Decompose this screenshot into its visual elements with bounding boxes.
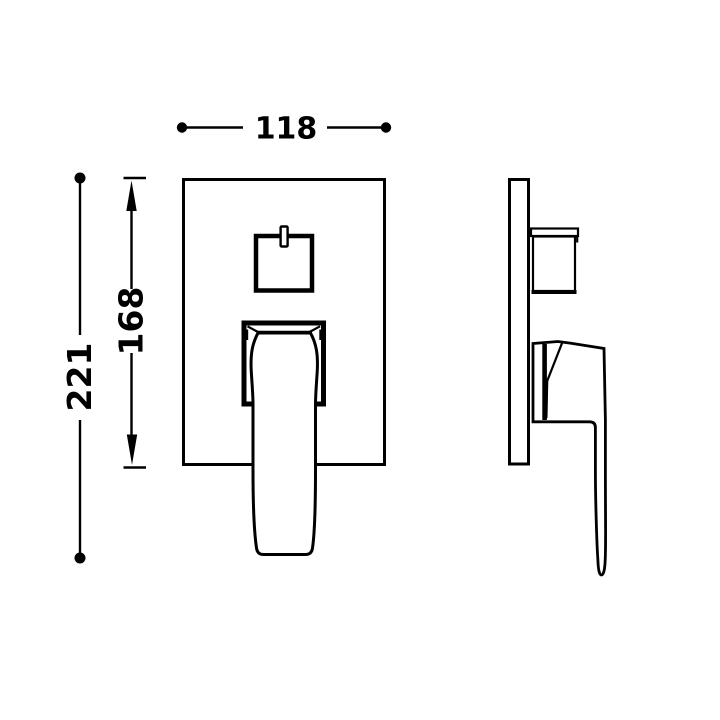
front-knob-tab [281, 227, 288, 247]
side-plate [510, 180, 529, 465]
dimension-width: 118 [177, 112, 391, 147]
front-view [184, 180, 385, 555]
dimension-endpoint-dot [75, 173, 86, 184]
dimension-overall-height: 221 [60, 173, 99, 564]
dimension-overall-height-label: 221 [60, 343, 99, 412]
side-view [510, 180, 606, 576]
dimension-endpoint-dot [381, 122, 391, 132]
dimension-plate-height-label: 168 [112, 287, 151, 356]
side-knob-flange [531, 229, 578, 237]
dimension-width-label: 118 [255, 112, 318, 147]
dimension-endpoint-dot [75, 553, 86, 564]
dimension-drawing: 118 221 168 [0, 0, 720, 720]
dimension-plate-height: 168 [112, 178, 151, 468]
technical-drawing-canvas: 118 221 168 [0, 0, 720, 720]
front-lever-handle [251, 333, 317, 555]
side-knob-body [533, 237, 575, 292]
dimension-endpoint-dot [177, 122, 187, 132]
arrow-down-icon [127, 435, 137, 466]
arrow-up-icon [126, 181, 136, 212]
